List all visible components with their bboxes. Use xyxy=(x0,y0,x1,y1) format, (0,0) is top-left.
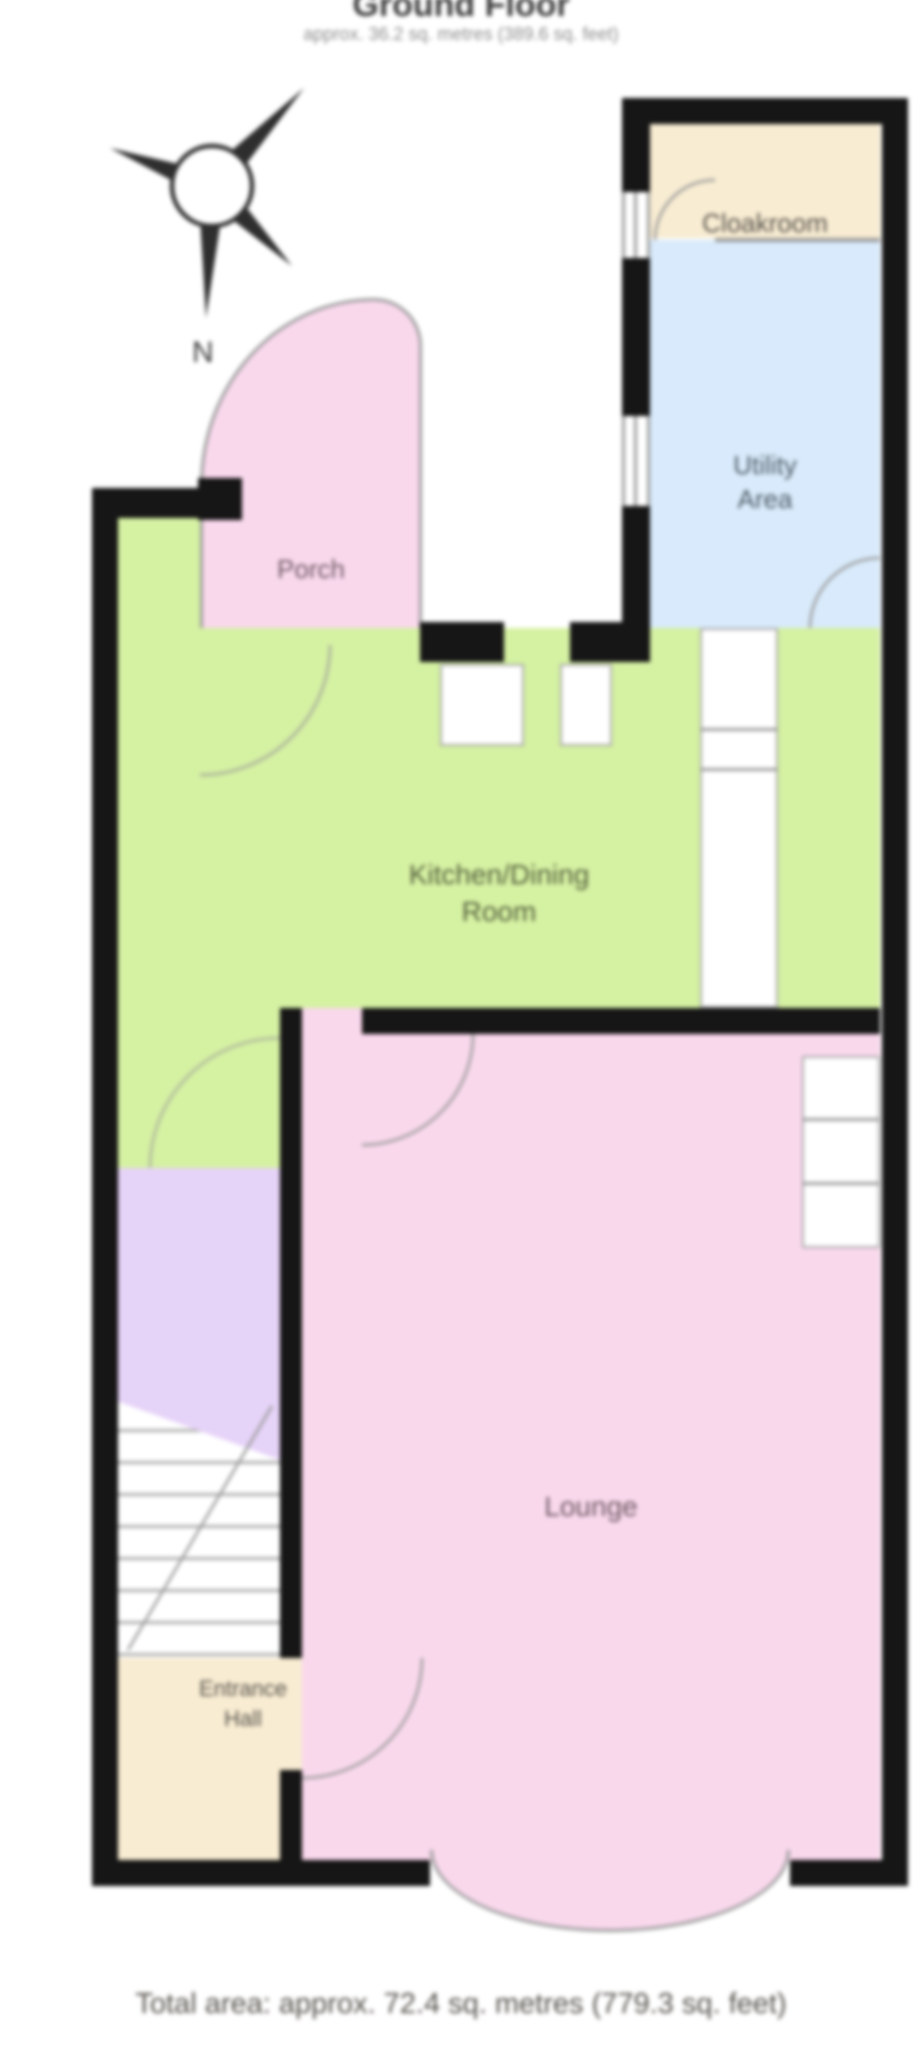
utility-window-1 xyxy=(622,192,650,258)
utility-window-2 xyxy=(622,416,650,506)
wall-right-outer xyxy=(882,98,908,1886)
porch-label: Porch xyxy=(200,552,422,586)
wall-bottom-left xyxy=(92,1860,430,1886)
wall-hall-lounge-upper xyxy=(280,1008,302,1658)
page-title: Ground Floor xyxy=(0,0,922,25)
wall-entrance-left xyxy=(420,622,504,662)
compass-north-label: N xyxy=(192,336,214,369)
room-utility-area xyxy=(650,240,880,628)
wall-hall-lounge-lower xyxy=(280,1770,302,1862)
utility-label: Utility Area xyxy=(650,448,880,516)
cloakroom-label: Cloakroom xyxy=(650,206,880,240)
compass-rose-icon: N xyxy=(110,88,304,369)
lounge-recess-line-2 xyxy=(802,1182,880,1185)
total-area-text: Total area: approx. 72.4 sq. metres (779… xyxy=(0,1988,922,2021)
wall-wing-top xyxy=(622,98,908,124)
front-door-leaf xyxy=(440,664,524,746)
wall-bottom-right xyxy=(790,1860,908,1886)
floorplan-blur-layer: Ground Floor approx. 36.2 sq. metres (38… xyxy=(0,0,922,2048)
front-door-sidelight xyxy=(560,664,612,746)
kitchen-label: Kitchen/Dining Room xyxy=(118,856,880,930)
wall-wing-left-a xyxy=(622,124,650,192)
floor-area-subtitle: approx. 36.2 sq. metres (389.6 sq. feet) xyxy=(0,24,922,45)
floorplan-page: Ground Floor approx. 36.2 sq. metres (38… xyxy=(0,0,922,2048)
wall-entrance-right xyxy=(570,622,622,662)
room-lounge xyxy=(302,1008,880,1862)
bay-window xyxy=(430,1850,790,1932)
porch-corner-post xyxy=(198,478,242,520)
chimney-shelf-line-2 xyxy=(700,768,778,771)
wall-wing-left-b xyxy=(622,258,650,416)
room-kitchen-left-column xyxy=(118,1008,280,1168)
entrance-hall-label: Entrance Hall xyxy=(133,1674,353,1734)
room-kitchen-left-arm xyxy=(118,518,200,628)
lounge-side-recess xyxy=(802,1056,880,1248)
chimney-shelf-line-1 xyxy=(700,728,778,731)
wall-left-outer xyxy=(92,488,118,1886)
wall-wing-left-c xyxy=(622,506,650,662)
lounge-label: Lounge xyxy=(302,1490,880,1524)
wall-kitchen-lounge-divider xyxy=(362,1008,880,1034)
lounge-recess-line-1 xyxy=(802,1118,880,1121)
kitchen-chimney-recess xyxy=(700,628,778,1008)
